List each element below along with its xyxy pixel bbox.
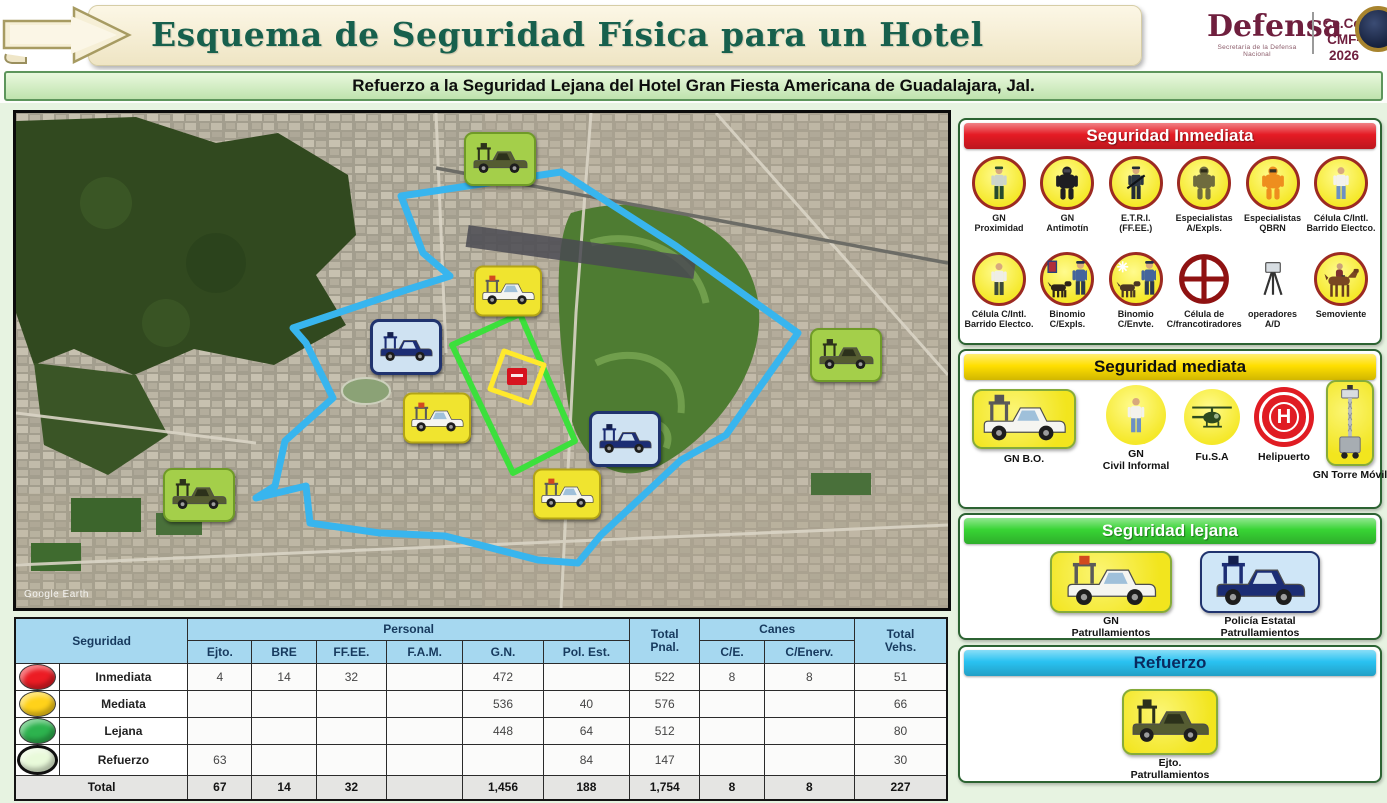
table-row-refuerzo: Refuerzo 63 84 147 30 — [15, 744, 947, 775]
table-cell: 14 — [252, 775, 316, 800]
table-cell: 147 — [630, 744, 700, 775]
panel-refuerzo: Refuerzo Ejto. Patrullamientos — [958, 645, 1382, 783]
inmediata-icon-row-2: Célula C/Intl. Barrido Electco. Binomio … — [965, 252, 1375, 329]
arrow-icon — [2, 4, 134, 66]
hotel-marker-icon — [507, 368, 527, 385]
header-bar: Esquema de Seguridad Física para un Hote… — [0, 0, 1387, 70]
row-label: Inmediata — [59, 663, 188, 690]
forces-summary-table: Seguridad Personal Total Pnal. Canes Tot… — [14, 617, 948, 801]
counter-sniper-cell-icon — [1177, 252, 1231, 306]
table-cell: 40 — [543, 690, 629, 717]
table-cell: 472 — [463, 663, 543, 690]
defensa-logo: Defensa Secretaría de la Defensa Naciona… — [1207, 12, 1307, 58]
map-base-image — [16, 113, 948, 608]
table-cell: 64 — [543, 717, 629, 744]
state-police-label: Policía Estatal Patrullamientos — [1198, 615, 1322, 639]
status-dot-lejana — [19, 718, 56, 744]
map-marker-ejto-patrol-southwest — [163, 468, 235, 522]
map-marker-gn-patrol-north — [474, 266, 542, 317]
gn-patrol-truck-icon — [1050, 551, 1172, 613]
civilian-sweep-cell-icon — [1314, 156, 1368, 210]
row-label: Mediata — [59, 690, 188, 717]
gn-bo-label: GN B.O. — [972, 453, 1076, 465]
military-truck-icon — [817, 338, 875, 372]
map-watermark: Google Earth — [24, 589, 89, 600]
table-cell — [316, 717, 386, 744]
gn-truck-icon — [539, 478, 595, 511]
drone-operator-icon — [1246, 252, 1300, 306]
table-cell — [252, 717, 316, 744]
gn-civil-informal-icon — [1106, 385, 1166, 445]
column-header: F.A.M. — [387, 640, 463, 663]
table-cell — [252, 744, 316, 775]
panel-seguridad-inmediata: Seguridad Inmediata GN Proximidad GN Ant… — [958, 118, 1382, 345]
table-cell — [316, 690, 386, 717]
table-cell — [387, 663, 463, 690]
satellite-map: Google Earth — [13, 110, 951, 611]
map-marker-gn-patrol-west — [403, 393, 471, 444]
table-row-lejana: Lejana 448 64 512 80 — [15, 717, 947, 744]
military-truck-icon — [170, 478, 228, 512]
table-cell: 32 — [316, 775, 386, 800]
brand-subtitle: Secretaría de la Defensa Nacional — [1207, 44, 1307, 58]
status-dot-mediata — [19, 691, 56, 717]
panel-header-refuerzo: Refuerzo — [964, 650, 1376, 676]
table-cell: 448 — [463, 717, 543, 744]
gn-torre-movil-icon — [1326, 380, 1374, 466]
table-cell: 80 — [855, 717, 947, 744]
helipuerto-icon: H — [1254, 387, 1314, 447]
police-truck-icon — [378, 331, 434, 364]
table-cell — [700, 690, 764, 717]
subtitle-text: Refuerzo a la Seguridad Lejana del Hotel… — [352, 76, 1034, 96]
table-cell — [543, 663, 629, 690]
table-cell — [188, 690, 252, 717]
table-cell: 512 — [630, 717, 700, 744]
map-marker-police-patrol-northwest — [370, 319, 442, 375]
column-header-total-vehs: Total Vehs. — [855, 618, 947, 663]
row-label: Refuerzo — [59, 744, 188, 775]
table-cell: 227 — [855, 775, 947, 800]
narcotics-dog-team-icon — [1109, 252, 1163, 306]
unit-cell: Célula C/Intl. Barrido Electco. — [1307, 156, 1375, 233]
gn-truck-icon — [480, 275, 536, 308]
fusa-helicopter-icon — [1184, 389, 1240, 445]
civilian-sweep-cell-icon — [972, 252, 1026, 306]
table-cell: 8 — [700, 775, 764, 800]
helipuerto-label: Helipuerto — [1244, 451, 1324, 463]
title-plate: Esquema de Seguridad Física para un Hote… — [88, 5, 1142, 66]
ejto-patrol-truck-icon — [1122, 689, 1218, 755]
map-marker-gn-patrol-south — [533, 469, 601, 520]
map-marker-police-patrol-southeast — [589, 411, 661, 467]
status-dot-refuerzo — [17, 745, 58, 775]
table-row-total: Total 67 14 32 1,456 188 1,754 8 8 227 — [15, 775, 947, 800]
column-header: BRE — [252, 640, 316, 663]
explosives-dog-team-icon — [1040, 252, 1094, 306]
panel-header-lejana: Seguridad lejana — [964, 518, 1376, 544]
military-truck-icon — [471, 142, 529, 176]
table-cell — [764, 744, 854, 775]
column-header: FF.EE. — [316, 640, 386, 663]
gn-truck-icon — [409, 402, 465, 435]
column-header-seguridad: Seguridad — [15, 618, 188, 663]
table-cell — [463, 744, 543, 775]
map-marker-ejto-patrol-north — [464, 132, 536, 186]
table-cell: 30 — [855, 744, 947, 775]
table-cell — [764, 717, 854, 744]
map-marker-ejto-patrol-east — [810, 328, 882, 382]
column-header: C/E. — [700, 640, 764, 663]
unit-cell: Semoviente — [1307, 252, 1375, 329]
table-cell — [316, 744, 386, 775]
table-cell: 32 — [316, 663, 386, 690]
table-row-mediata: Mediata 536 40 576 66 — [15, 690, 947, 717]
table-cell: 1,456 — [463, 775, 543, 800]
qbrn-hazmat-specialist-icon — [1246, 156, 1300, 210]
table-cell — [387, 690, 463, 717]
status-dot-inmediata — [19, 664, 56, 690]
table-cell: 67 — [188, 775, 252, 800]
state-police-truck-icon — [1200, 551, 1320, 613]
table-cell — [252, 690, 316, 717]
ejto-patrol-label: Ejto. Patrullamientos — [1110, 757, 1230, 781]
panel-header-mediata: Seguridad mediata — [964, 354, 1376, 380]
table-cell: 1,754 — [630, 775, 700, 800]
briefing-slide: Esquema de Seguridad Física para un Hote… — [0, 0, 1387, 803]
table-cell: 8 — [764, 775, 854, 800]
table-cell: 51 — [855, 663, 947, 690]
table-cell — [700, 744, 764, 775]
table-row-inmediata: Inmediata 4 14 32 472 522 8 8 51 — [15, 663, 947, 690]
police-truck-icon — [597, 423, 653, 456]
page-title: Esquema de Seguridad Física para un Hote… — [151, 15, 984, 54]
table-cell — [387, 775, 463, 800]
table-cell: 522 — [630, 663, 700, 690]
inmediata-icon-row-1: GN Proximidad GN Antimotín E.T.R.I. (FF.… — [965, 156, 1375, 233]
table-cell: 536 — [463, 690, 543, 717]
table-cell: 576 — [630, 690, 700, 717]
gn-torre-movil-label: GN Torre Móvil — [1296, 469, 1387, 481]
column-group-canes: Canes — [700, 618, 855, 640]
row-label: Lejana — [59, 717, 188, 744]
gn-bo-truck-icon — [972, 389, 1076, 449]
column-header-total-pnal: Total Pnal. — [630, 618, 700, 663]
table-cell — [188, 717, 252, 744]
gn-civil-informal-label: GN Civil Informal — [1086, 448, 1186, 472]
panel-header-inmediata: Seguridad Inmediata — [964, 123, 1376, 149]
panel-seguridad-lejana: Seguridad lejana GN Patrullamientos Poli… — [958, 513, 1382, 640]
total-label: Total — [15, 775, 188, 800]
table-cell: 8 — [700, 663, 764, 690]
table-cell: 84 — [543, 744, 629, 775]
panel-seguridad-mediata: Seguridad mediata GN B.O. GN Civil Infor… — [958, 349, 1382, 509]
table-cell — [764, 690, 854, 717]
table-cell — [700, 717, 764, 744]
table-cell: 66 — [855, 690, 947, 717]
column-header: Ejto. — [188, 640, 252, 663]
horse-mounted-unit-icon — [1314, 252, 1368, 306]
subtitle-bar: Refuerzo a la Seguridad Lejana del Hotel… — [4, 71, 1383, 101]
table-cell — [387, 717, 463, 744]
table-cell: 4 — [188, 663, 252, 690]
bomb-suit-specialist-icon — [1177, 156, 1231, 210]
gn-antimotin-icon — [1040, 156, 1094, 210]
gn-proximidad-icon — [972, 156, 1026, 210]
column-header: G.N. — [463, 640, 543, 663]
brand-name: Defensa — [1207, 12, 1307, 42]
fusa-label: Fu.S.A — [1176, 451, 1248, 463]
gn-patrol-label: GN Patrullamientos — [1050, 615, 1172, 639]
table-cell — [387, 744, 463, 775]
etri-operator-icon — [1109, 156, 1163, 210]
logo-divider — [1312, 12, 1314, 54]
table-cell: 14 — [252, 663, 316, 690]
table-cell: 63 — [188, 744, 252, 775]
table-cell: 8 — [764, 663, 854, 690]
column-group-personal: Personal — [188, 618, 630, 640]
table-cell: 188 — [543, 775, 629, 800]
column-header: Pol. Est. — [543, 640, 629, 663]
column-header: C/Enerv. — [764, 640, 854, 663]
